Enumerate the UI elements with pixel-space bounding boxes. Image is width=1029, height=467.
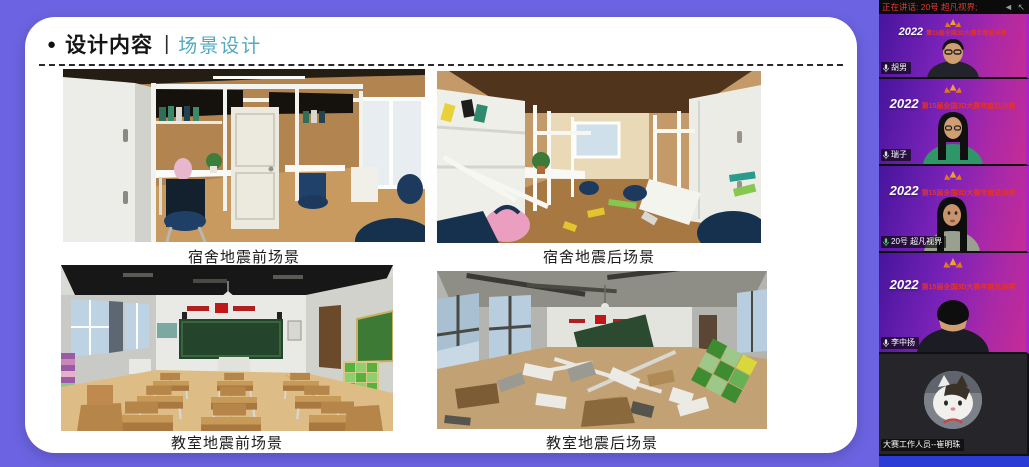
classroom-before-earthquake-image	[61, 265, 393, 431]
participant-video-person	[921, 35, 985, 79]
mic-icon	[883, 64, 889, 73]
participant-name-label: 胡男	[881, 62, 911, 74]
participant-name: 大赛工作人员--崔明珠	[883, 440, 960, 450]
avatar	[924, 371, 982, 429]
video-tile-participant-5[interactable]: 大赛工作人员--崔明珠	[879, 354, 1029, 456]
caption-dorm-after: 宿舍地震后场景	[437, 246, 761, 267]
video-tile-participant-2[interactable]: 2022 第15届全国3D大赛年度总决赛 瑞子	[879, 79, 1029, 166]
sidebar-bottom-strip	[879, 456, 1029, 467]
caption-classroom-after: 教室地震后场景	[437, 432, 767, 453]
participant-name-label: 李中扬	[881, 337, 919, 349]
video-tile-participant-1[interactable]: 2022 第15届全国3D大赛年度总决赛 胡男	[879, 14, 1029, 79]
speaking-status-text: 正在讲话: 20号 超凡视界;	[882, 1, 1004, 13]
presentation-slide: ● 设计内容 | 场景设计	[25, 17, 857, 453]
banner-title: 第15届全国3D大赛年度总决赛	[922, 282, 1016, 292]
participant-video-person	[916, 106, 990, 166]
mic-active-icon	[883, 238, 889, 247]
slide-title: 设计内容	[65, 29, 153, 59]
contest-banner: 2022 第15届全国3D大赛年度总决赛	[879, 277, 1026, 292]
slide-title-row: ● 设计内容 | 场景设计	[47, 29, 262, 59]
participant-name: 胡男	[891, 63, 907, 73]
banner-year: 2022	[890, 277, 919, 292]
contest-logo-icon	[943, 84, 963, 95]
participant-name: 瑞子	[891, 150, 907, 160]
caption-classroom-before: 教室地震前场景	[61, 432, 393, 453]
dorm-after-earthquake-image	[437, 71, 761, 243]
contest-logo-icon	[942, 258, 964, 270]
participant-video-person	[911, 292, 995, 354]
slide-subtitle: 场景设计	[178, 31, 262, 58]
dashed-divider	[39, 64, 843, 66]
video-participants-sidebar: 正在讲话: 20号 超凡视界; ◄ ↖ 2022 第15届全国3D大赛年度总决赛	[879, 0, 1029, 467]
title-separator: |	[164, 33, 169, 56]
bullet-icon: ●	[47, 37, 56, 52]
mic-icon	[883, 151, 889, 160]
banner-year: 2022	[890, 96, 919, 111]
banner-year: 2022	[890, 183, 919, 198]
participant-name-label: 瑞子	[881, 149, 911, 161]
participant-name-label: 大赛工作人员--崔明珠	[881, 439, 964, 451]
banner-year: 2022	[899, 26, 923, 38]
participant-name: 李中扬	[891, 338, 915, 348]
classroom-after-earthquake-image	[437, 271, 767, 429]
mic-icon	[883, 339, 889, 348]
contest-logo-icon	[943, 171, 963, 182]
speaker-status-bar: 正在讲话: 20号 超凡视界; ◄ ↖	[879, 0, 1029, 14]
participant-name: 20号 超凡视界	[891, 237, 942, 247]
caption-dorm-before: 宿舍地震前场景	[63, 246, 425, 267]
cat-avatar-image	[924, 371, 982, 429]
dorm-before-earthquake-image	[63, 69, 425, 242]
participant-name-label: 20号 超凡视界	[881, 236, 946, 248]
video-tile-participant-4[interactable]: 2022 第15届全国3D大赛年度总决赛 李中扬	[879, 253, 1029, 354]
screen: ● 设计内容 | 场景设计	[0, 0, 1029, 467]
collapse-arrows-icon[interactable]: ◄ ↖	[1004, 2, 1026, 13]
video-tile-participant-3[interactable]: 2022 第15届全国3D大赛年度总决赛 20号 超凡视界	[879, 166, 1029, 253]
